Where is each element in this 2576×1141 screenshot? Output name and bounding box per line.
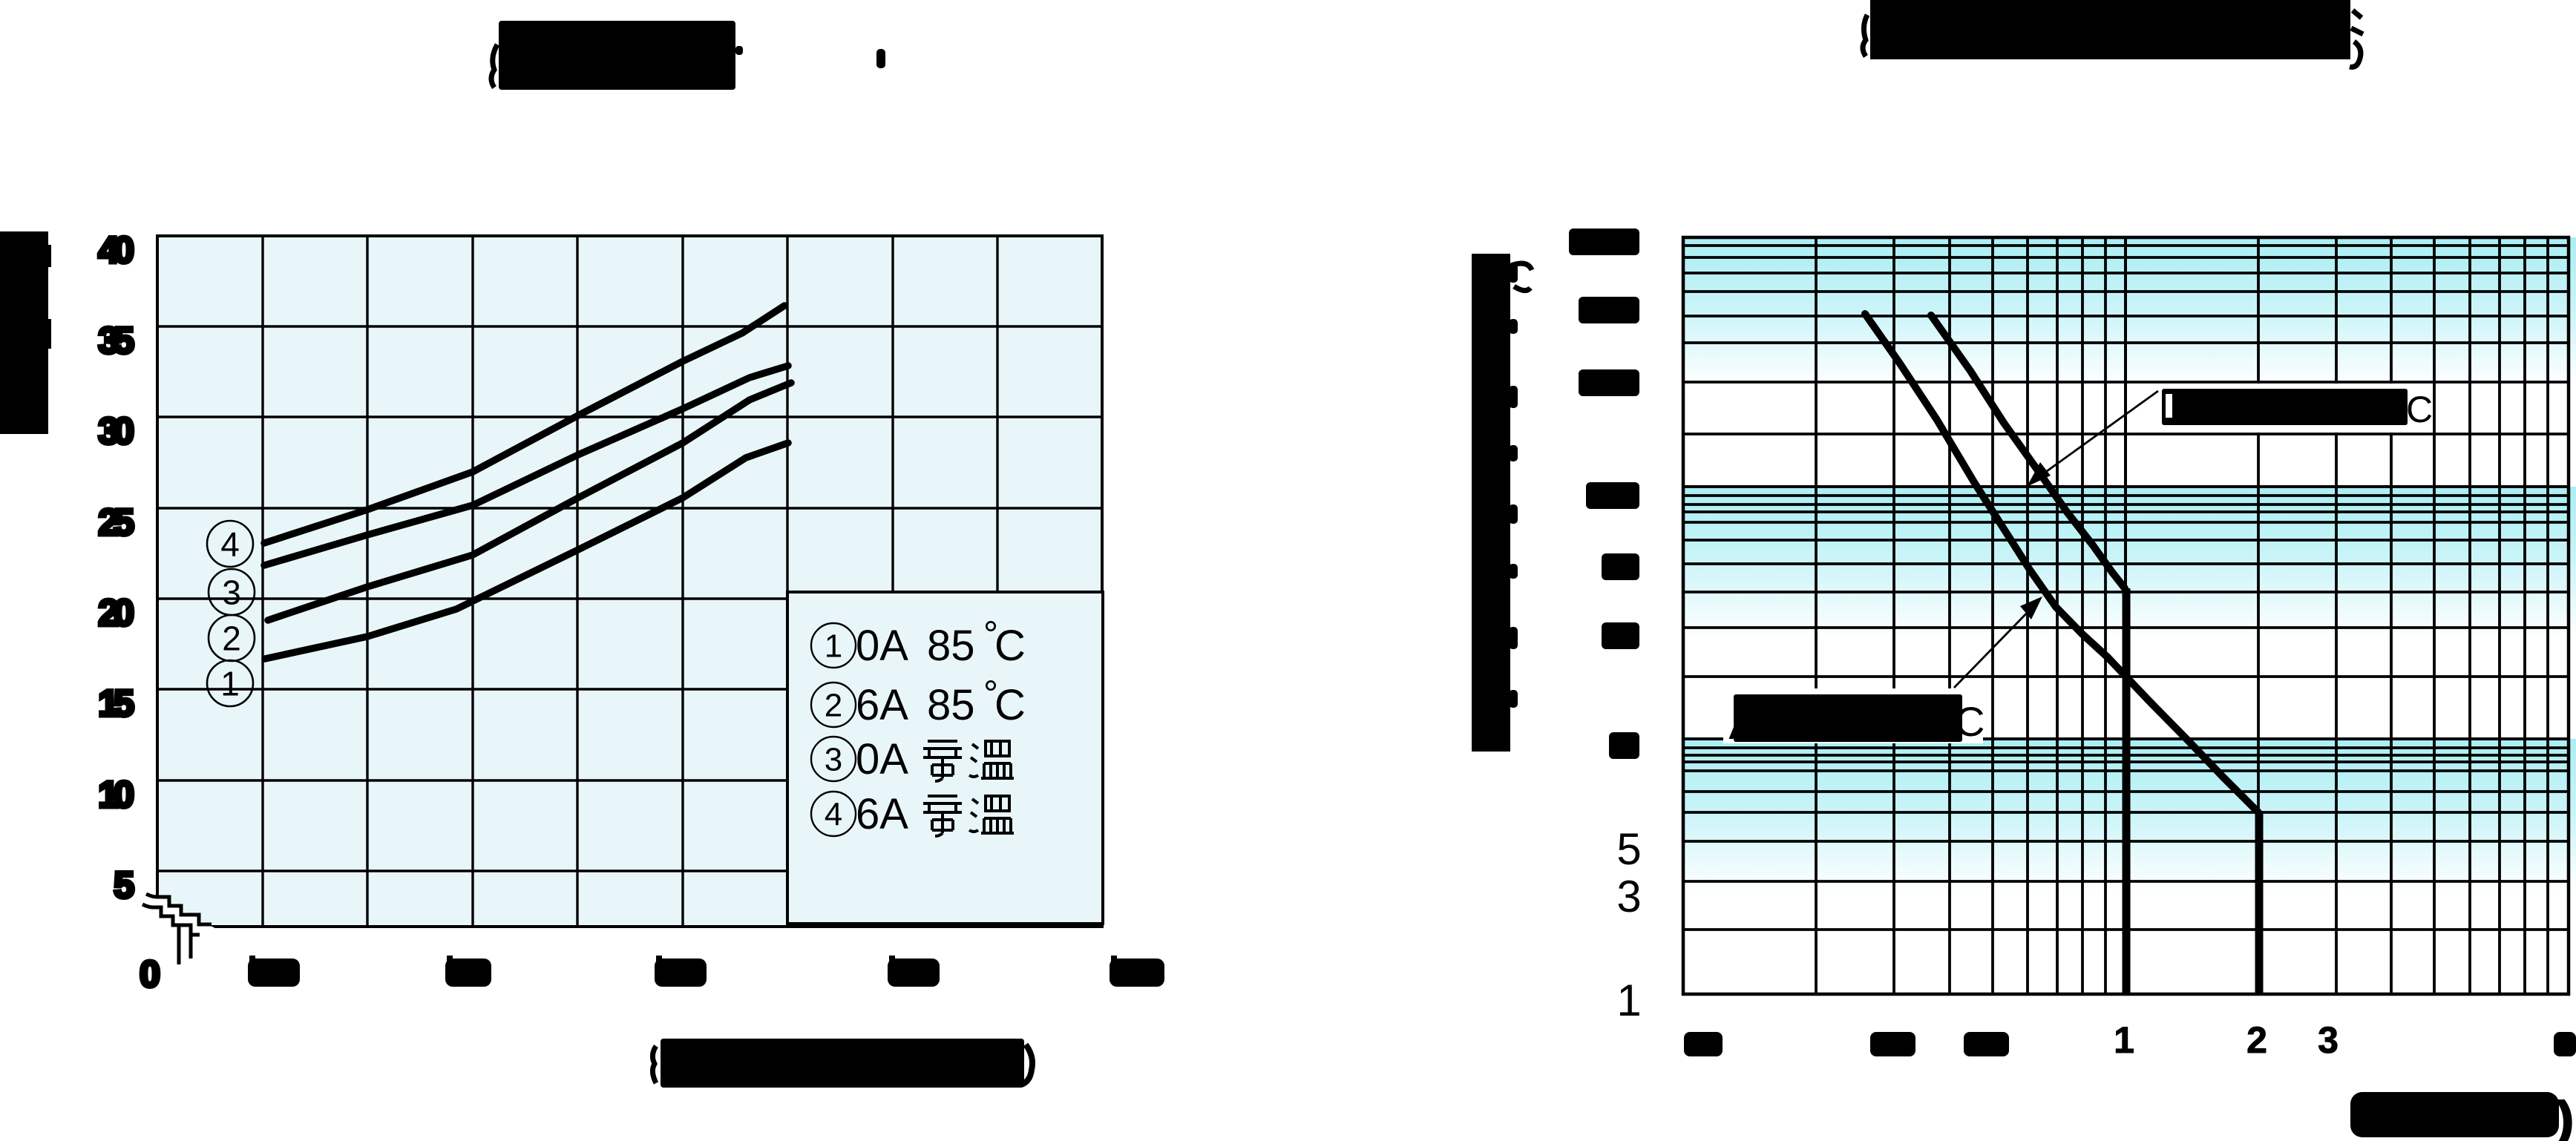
svg-text:10: 10 [98,774,133,815]
svg-text:30: 30 [98,410,133,452]
svg-text:1: 1 [220,664,240,703]
svg-text:1: 1 [2114,1019,2134,1061]
svg-text:35: 35 [98,320,134,361]
svg-text:0: 0 [140,953,160,995]
svg-text:15: 15 [98,683,134,724]
svg-text:1: 1 [1616,976,1641,1025]
svg-text:6A: 6A [856,790,908,838]
svg-text:40: 40 [98,229,133,271]
svg-text:5: 5 [1616,824,1641,874]
svg-text:4: 4 [825,797,842,833]
svg-text:C: C [994,681,1026,729]
svg-text:3: 3 [2318,1019,2339,1061]
svg-text:C: C [994,622,1026,670]
svg-text:C: C [2406,389,2433,430]
svg-text:25: 25 [98,502,134,543]
svg-text:2: 2 [825,688,842,724]
svg-text:3: 3 [825,742,842,778]
svg-text:0A: 0A [856,735,908,783]
svg-text:): ) [2557,1092,2573,1141]
svg-text:20: 20 [98,592,133,634]
svg-text:A: A [1728,698,1760,749]
svg-text:2: 2 [2246,1019,2267,1061]
svg-text:3: 3 [1616,872,1641,921]
svg-text:85: 85 [927,681,975,729]
svg-text:1: 1 [825,628,842,665]
svg-text:6A: 6A [856,681,908,729]
svg-text:85: 85 [927,622,975,670]
svg-text:C: C [1955,698,1985,745]
svg-text:4: 4 [220,525,240,563]
svg-text:0A: 0A [856,622,908,670]
svg-text:3: 3 [222,573,241,611]
svg-text:2: 2 [222,619,241,657]
